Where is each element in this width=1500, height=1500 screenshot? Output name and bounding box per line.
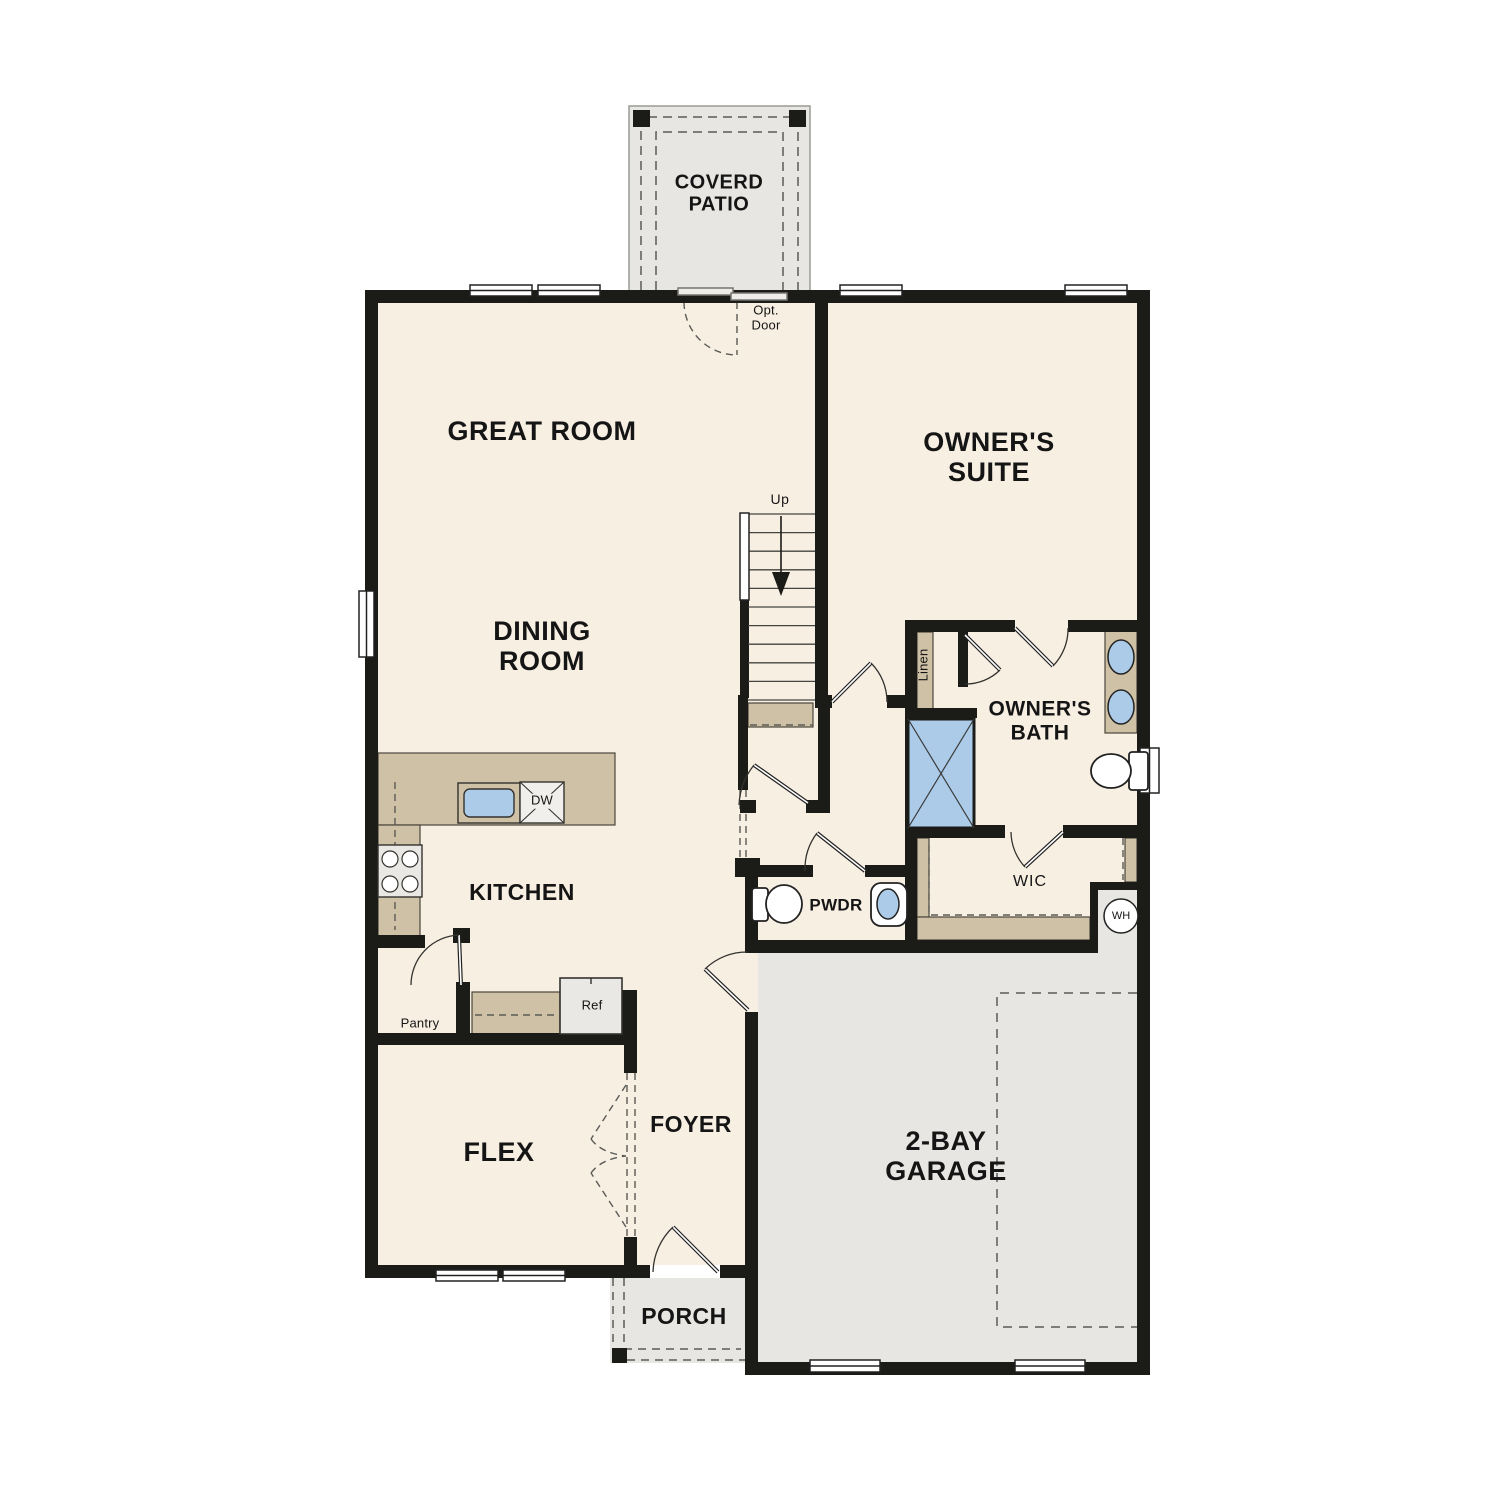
pwdr-toilet xyxy=(752,885,802,923)
wall-closet-right xyxy=(818,700,830,813)
wall-garage-left xyxy=(745,1012,758,1362)
wall-greatroom-suite xyxy=(815,302,828,700)
garage-floor xyxy=(758,953,1137,1362)
window xyxy=(1065,285,1127,296)
wic-shelf-bottom xyxy=(917,917,1090,940)
window xyxy=(503,1270,565,1281)
dishwasher xyxy=(520,782,564,823)
wall-ref-right xyxy=(622,990,637,1035)
wall-closet-bottom-l xyxy=(740,800,756,813)
stair-railing xyxy=(740,513,749,600)
porch-floor xyxy=(610,1278,745,1363)
window xyxy=(359,591,374,657)
wall-flex-bottom-stub xyxy=(624,1237,637,1267)
wall-hall-suite-b xyxy=(887,695,905,708)
vanity-sink xyxy=(1108,690,1134,724)
vanity-sink xyxy=(1108,640,1134,674)
wall-left-exterior xyxy=(365,290,378,1278)
wic-shelf-right xyxy=(1125,838,1137,882)
wall-pantry-right xyxy=(456,982,470,1037)
wall-linen-stub xyxy=(958,632,968,687)
window xyxy=(538,285,600,296)
wall-garage-bottom xyxy=(745,1362,1150,1375)
wall-suite-bottom-b xyxy=(1068,620,1137,632)
kitchen-sink xyxy=(458,783,520,823)
bath-toilet xyxy=(1091,752,1148,790)
window xyxy=(436,1270,498,1281)
wall-right-exterior xyxy=(1137,290,1150,1375)
wall-wic-bottom xyxy=(745,940,1098,953)
wall-wh-left xyxy=(1090,890,1098,953)
linen-shelf xyxy=(917,632,933,710)
wall-bath-bottom-b xyxy=(1063,825,1137,838)
understairs-shelf xyxy=(748,703,813,727)
porch-post xyxy=(612,1348,627,1363)
wall-pwdr-top-b xyxy=(865,865,905,877)
wall-suite-bottom-a xyxy=(905,620,1015,632)
window xyxy=(810,1360,880,1372)
pwdr-sink xyxy=(871,883,907,926)
wic-shelf-left xyxy=(917,838,929,917)
window xyxy=(1015,1360,1085,1372)
window xyxy=(470,285,532,296)
range-stove xyxy=(378,845,422,897)
kitchen-counter-bottom xyxy=(472,992,560,1035)
wall-flex-top-stub xyxy=(624,1033,637,1073)
water-heater xyxy=(1104,899,1138,933)
wall-kitchen-bottom xyxy=(365,1033,637,1045)
floor-plan-page: COVERD PATIO Opt. Door GREAT ROOM OWNER'… xyxy=(0,0,1500,1500)
wall-stairs-left xyxy=(740,598,749,698)
wall-shower-top xyxy=(905,708,977,718)
refrigerator xyxy=(560,978,622,1034)
wall-understairs-stub xyxy=(735,858,760,877)
floor-plan-drawing xyxy=(0,0,1500,1500)
shower xyxy=(908,719,974,828)
patio-post-left xyxy=(633,110,650,127)
patio-post-right xyxy=(789,110,806,127)
wall-pantry-top xyxy=(365,935,425,948)
wall-wh-top xyxy=(1090,882,1137,890)
window xyxy=(840,285,902,296)
